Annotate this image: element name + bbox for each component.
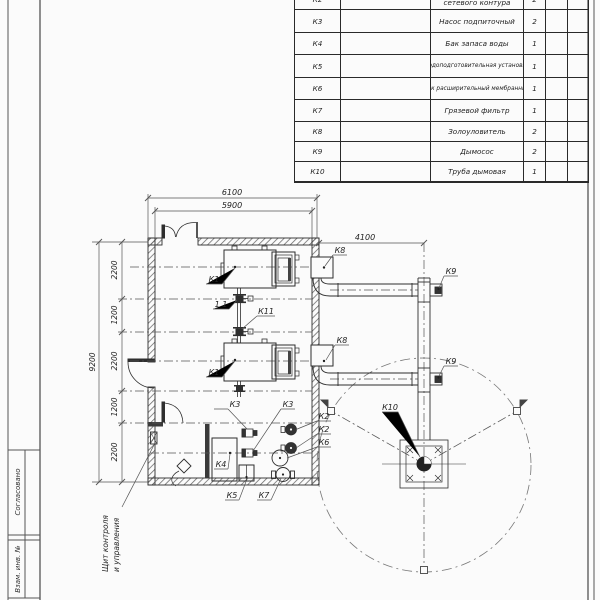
- spec-note: [568, 162, 588, 181]
- dim-flue-width: 4100: [355, 233, 375, 242]
- table-row: К7 Грязевой фильтр 1: [295, 100, 588, 122]
- spec-note: [568, 78, 588, 99]
- tag-k6: К6: [319, 438, 330, 447]
- tag-k3-2: К3: [283, 400, 294, 409]
- spec-note: [568, 33, 588, 54]
- spec-qty: 1: [524, 162, 546, 181]
- spec-code: К5: [295, 55, 341, 77]
- tag-k1-2: К1: [209, 368, 220, 377]
- dim-seg-b: 1200: [110, 305, 119, 324]
- tag-leaders: [122, 255, 458, 507]
- spec-designation: [341, 100, 431, 121]
- spec-designation: [341, 122, 431, 141]
- spec-mass: [546, 142, 568, 161]
- dim-total-width: 6100: [222, 188, 242, 197]
- tag-k9-1: К9: [446, 267, 457, 276]
- control-panel-note-line2: и управления: [112, 517, 121, 572]
- tag-k10: К10: [382, 403, 398, 412]
- spec-designation: [341, 33, 431, 54]
- pump-k2-1: [281, 424, 297, 435]
- spec-note: [568, 142, 588, 161]
- stamp-inv-no: Взам. инв. №: [14, 545, 22, 593]
- spec-designation: [341, 162, 431, 181]
- tag-k11: К11: [258, 307, 274, 316]
- spec-name: Водоподготовительная установка: [431, 55, 524, 77]
- spec-mass: [546, 78, 568, 99]
- flue-duct-2: [313, 366, 418, 386]
- expansion-tank-k6: [272, 450, 288, 466]
- dim-seg-d: 1200: [110, 397, 119, 416]
- spec-note: [568, 55, 588, 77]
- spec-name: сетевого контура: [431, 0, 524, 9]
- tag-k3-1: К3: [230, 400, 241, 409]
- dim-seg-c: 2200: [110, 351, 119, 370]
- stamp-agreed: Согласовано: [14, 468, 22, 515]
- interior-partitions: [148, 422, 210, 478]
- side-door: [128, 359, 154, 388]
- spec-qty: 1: [524, 100, 546, 121]
- table-row: К3 Насос подпиточный 2: [295, 10, 588, 33]
- control-panel-note: Щит контроля и управления: [101, 515, 121, 572]
- spec-code: К9: [295, 142, 341, 161]
- table-row: К8 Золоуловитель 2: [295, 122, 588, 142]
- spec-mass: [546, 0, 568, 9]
- spec-name: Насос подпиточный: [431, 10, 524, 32]
- spec-mass: [546, 162, 568, 181]
- spec-code: К6: [295, 78, 341, 99]
- spec-mass: [546, 55, 568, 77]
- flue-duct-1: [313, 278, 418, 297]
- entrance-door: [162, 222, 197, 238]
- table-row: К10 Труба дымовая 1: [295, 162, 588, 183]
- ash-collector-k8-2: [311, 345, 333, 366]
- spec-designation: [341, 10, 431, 32]
- spec-qty: 2: [524, 10, 546, 32]
- spec-qty: 2: [524, 122, 546, 141]
- tag-k8-2: К8: [337, 336, 348, 345]
- spec-code: К2: [295, 0, 341, 9]
- table-row: К9 Дымосос 2: [295, 142, 588, 162]
- dim-inner-width: 5900: [222, 201, 242, 210]
- dim-total-height: 9200: [88, 352, 97, 371]
- tag-k2-2: К2: [319, 425, 330, 434]
- pump-k3-1: [242, 429, 257, 437]
- drawing-sheet: Согласовано Взам. инв. №: [0, 0, 600, 600]
- spec-name: Бак расширительный мембранный: [431, 78, 524, 99]
- tag-1-1: 1.1: [215, 300, 228, 309]
- boiler-2: [221, 339, 299, 381]
- spec-name: Грязевой фильтр: [431, 100, 524, 121]
- tag-k5: К5: [227, 491, 238, 500]
- spec-note: [568, 10, 588, 32]
- spec-mass: [546, 10, 568, 32]
- room-door: [162, 402, 183, 423]
- tag-k9-2: К9: [446, 357, 457, 366]
- table-row: К4 Бак запаса воды 1: [295, 33, 588, 55]
- spec-designation: [341, 142, 431, 161]
- ash-collector-k8-1: [311, 257, 333, 278]
- spec-mass: [546, 122, 568, 141]
- spec-code: К7: [295, 100, 341, 121]
- tag-k8-1: К8: [335, 246, 346, 255]
- table-row: К6 Бак расширительный мембранный 1: [295, 78, 588, 100]
- spec-name: Дымосос: [431, 142, 524, 161]
- spec-designation: [341, 78, 431, 99]
- spec-designation: [341, 0, 431, 9]
- spec-qty: 1: [524, 78, 546, 99]
- spec-mass: [546, 100, 568, 121]
- spec-mass: [546, 33, 568, 54]
- spec-note: [568, 100, 588, 121]
- spec-code: К10: [295, 162, 341, 181]
- control-panel-note-line1: Щит контроля: [101, 515, 110, 572]
- dim-seg-e: 2200: [110, 442, 119, 461]
- spec-name: Бак запаса воды: [431, 33, 524, 54]
- spec-code: К8: [295, 122, 341, 141]
- tag-k1-1: К1: [209, 275, 220, 284]
- spec-code: К4: [295, 33, 341, 54]
- pump-k2-2: [281, 443, 297, 454]
- spec-note: [568, 122, 588, 141]
- spec-qty: 2: [524, 0, 546, 9]
- dim-seg-a: 2200: [110, 260, 119, 279]
- pump-k3-2: [242, 449, 257, 457]
- equipment-spec-table: К2 сетевого контура 2 К3 Насос подпиточн…: [294, 0, 589, 183]
- spec-qty: 1: [524, 55, 546, 77]
- valve-1-1: [233, 294, 253, 303]
- spec-code: К3: [295, 10, 341, 32]
- spec-note: [568, 0, 588, 9]
- tag-k2-1: К2: [319, 412, 330, 421]
- spec-name: Золоуловитель: [431, 122, 524, 141]
- tag-k7: К7: [259, 491, 271, 500]
- valve-below-boiler-2: [234, 385, 245, 392]
- smoke-exhauster-k9-2: [430, 373, 442, 385]
- spec-qty: 1: [524, 33, 546, 54]
- spec-qty: 2: [524, 142, 546, 161]
- table-row: К2 сетевого контура 2: [295, 0, 588, 10]
- tag-k4: К4: [216, 460, 227, 469]
- spec-name: Труба дымовая: [431, 162, 524, 181]
- spec-designation: [341, 55, 431, 77]
- table-row: К5 Водоподготовительная установка 1: [295, 55, 588, 78]
